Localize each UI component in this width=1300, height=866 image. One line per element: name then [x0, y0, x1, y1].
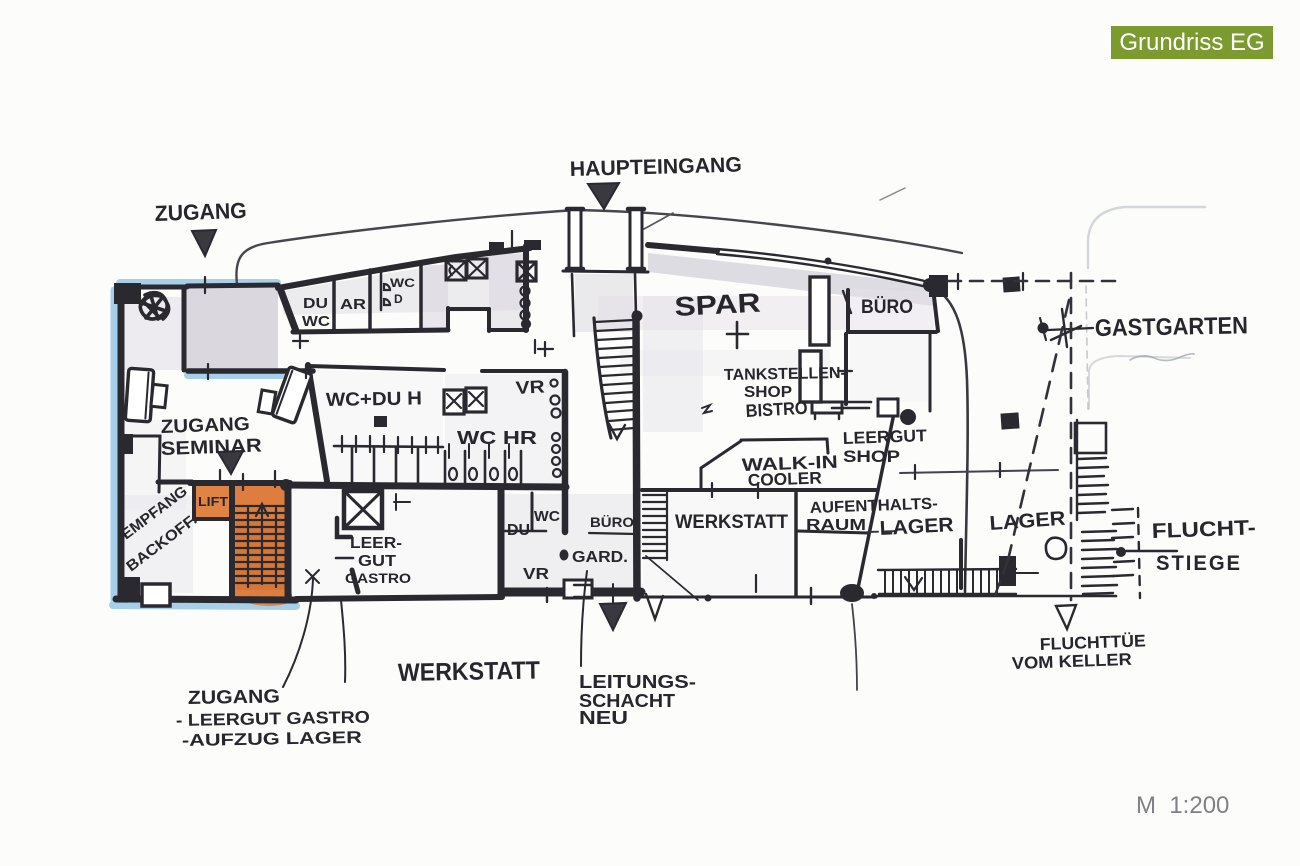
svg-text:GARD.: GARD.	[572, 549, 628, 566]
svg-text:LIFT: LIFT	[198, 494, 228, 509]
svg-text:VR: VR	[515, 377, 545, 398]
svg-text:GASTRO: GASTRO	[345, 570, 411, 586]
svg-text:LAGER: LAGER	[879, 514, 955, 540]
svg-text:DU: DU	[303, 295, 328, 312]
svg-text:STIEGE: STIEGE	[1156, 552, 1242, 575]
svg-text:WC+DU H: WC+DU H	[326, 388, 422, 411]
svg-text:VR: VR	[523, 566, 550, 583]
svg-text:WERKSTATT: WERKSTATT	[675, 512, 788, 533]
svg-text:- LEERGUT GASTRO: - LEERGUT GASTRO	[176, 708, 370, 730]
svg-text:TANKSTELLEN-: TANKSTELLEN-	[724, 365, 846, 384]
svg-text:WERKSTATT: WERKSTATT	[398, 657, 540, 687]
svg-text:SEMINAR: SEMINAR	[160, 435, 262, 460]
svg-text:AUFENTHALTS-: AUFENTHALTS-	[810, 496, 939, 517]
svg-text:AR: AR	[340, 296, 366, 313]
svg-text:GASTGARTEN: GASTGARTEN	[1095, 312, 1248, 342]
svg-text:LAGER: LAGER	[989, 508, 1067, 535]
svg-text:FLUCHT-: FLUCHT-	[1151, 516, 1256, 543]
svg-text:LEER-: LEER-	[350, 535, 402, 552]
svg-text:ZUGANG: ZUGANG	[188, 686, 280, 709]
svg-text:DU: DU	[507, 522, 530, 539]
svg-text:BISTRO: BISTRO	[745, 398, 808, 421]
svg-text:SHOP: SHOP	[843, 447, 900, 466]
svg-text:LEITUNGS-: LEITUNGS-	[579, 672, 696, 692]
svg-text:ZUGANG: ZUGANG	[154, 198, 247, 226]
svg-text:RAUM: RAUM	[806, 517, 866, 534]
svg-text:WC: WC	[534, 508, 560, 525]
svg-text:SPAR: SPAR	[674, 288, 761, 322]
svg-text:LEERGUT: LEERGUT	[842, 426, 927, 448]
svg-text:WC: WC	[390, 276, 415, 290]
svg-text:D: D	[394, 292, 403, 306]
svg-text:NEU: NEU	[579, 708, 628, 728]
svg-text:HAUPTEINGANG: HAUPTEINGANG	[570, 154, 743, 181]
svg-text:ZUGANG: ZUGANG	[160, 414, 250, 438]
svg-text:-AUFZUG LAGER: -AUFZUG LAGER	[182, 728, 362, 750]
svg-text:WC: WC	[302, 313, 330, 330]
svg-text:BÜRO: BÜRO	[861, 297, 913, 318]
svg-text:WC HR: WC HR	[457, 428, 537, 448]
svg-text:BÜRO: BÜRO	[590, 514, 634, 530]
svg-text:COOLER: COOLER	[747, 468, 822, 490]
svg-text:GUT: GUT	[358, 553, 396, 570]
svg-text:VOM KELLER: VOM KELLER	[1011, 650, 1132, 673]
